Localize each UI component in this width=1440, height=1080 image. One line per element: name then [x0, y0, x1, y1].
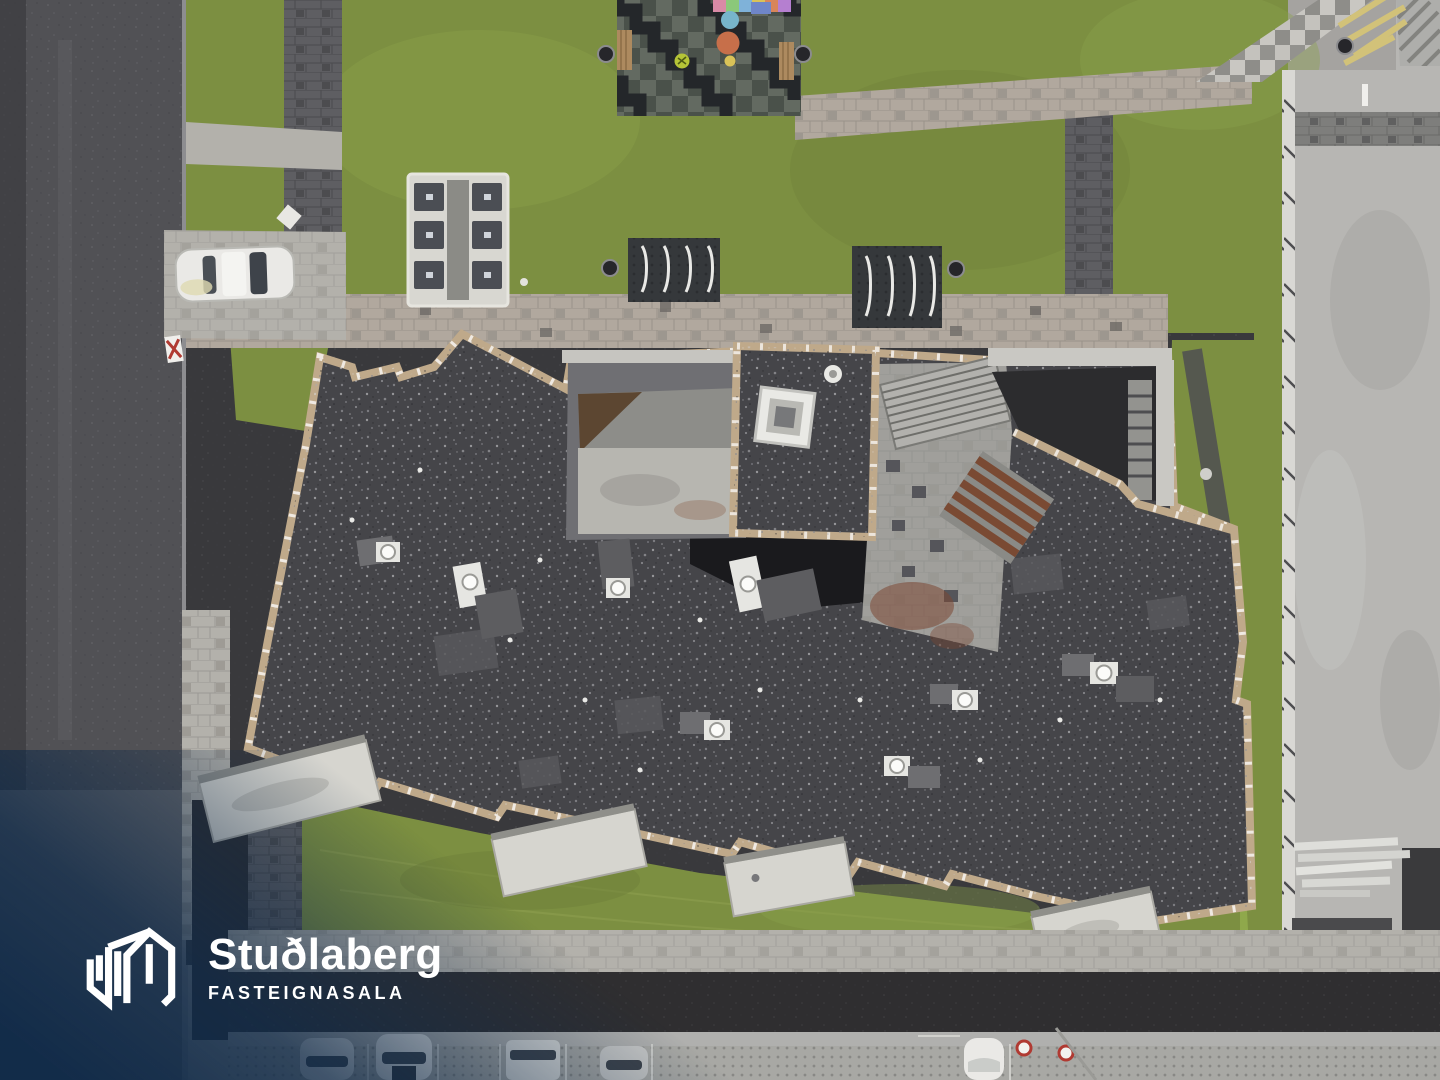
- skylight: [755, 387, 815, 447]
- enclosure-alley: [447, 180, 469, 300]
- windshield: [249, 252, 267, 295]
- bench-left: [617, 30, 632, 70]
- vent-center: [829, 370, 837, 378]
- street-wear-line: [58, 40, 72, 740]
- parked-car: [600, 1046, 648, 1080]
- deck-stain: [1294, 450, 1366, 670]
- concrete-stain: [600, 474, 680, 506]
- traffic-sign-round: [1017, 1041, 1031, 1055]
- deck-stain: [1330, 210, 1430, 390]
- brand-tagline: FASTEIGNASALA: [208, 983, 443, 1004]
- car-roof: [221, 252, 247, 297]
- play-mat-square: [751, 2, 771, 14]
- terrace-east-wall: [1156, 360, 1174, 506]
- aerial-photo: [0, 0, 1440, 1080]
- waste-bin-enclosure: [408, 174, 508, 306]
- logo-text: Stuðlaberg FASTEIGNASALA: [208, 932, 443, 1003]
- rust-stain: [870, 582, 954, 630]
- deck-stain: [1380, 630, 1440, 770]
- construction-deck: [1282, 0, 1440, 936]
- ground-light: [1337, 38, 1353, 54]
- parked-car: [300, 1038, 354, 1080]
- parked-car: [964, 1038, 1004, 1080]
- terrace-north-wall: [988, 348, 1172, 366]
- play-dome-orange: [717, 32, 740, 55]
- rust-stain: [674, 500, 726, 520]
- band-texture: [1292, 112, 1440, 146]
- street-dark-shoulder: [0, 0, 26, 790]
- rust-stain: [930, 623, 974, 649]
- play-dome-yellow: [725, 56, 736, 67]
- play-mat: [713, 0, 791, 14]
- courtyard-north-wall: [562, 350, 748, 363]
- aerial-photo-stage: Stuðlaberg FASTEIGNASALA: [0, 0, 1440, 1080]
- play-dome-blue: [721, 11, 739, 29]
- terrace-trellis: [1128, 380, 1152, 500]
- brand-name: Stuðlaberg: [208, 932, 443, 978]
- street: [0, 0, 188, 1080]
- lawn-marker: [520, 278, 528, 286]
- ground-light: [948, 261, 964, 277]
- scaffold-edge: [1282, 70, 1295, 936]
- ground-light: [602, 260, 618, 276]
- studlaberg-logo-mark: [78, 922, 190, 1014]
- lawn-fixture: [1200, 468, 1212, 480]
- parked-van: [506, 1040, 560, 1080]
- path-texture: [1065, 92, 1113, 304]
- center-roof-block: [733, 346, 876, 537]
- west-courtyard: [562, 350, 748, 540]
- studlaberg-logo: Stuðlaberg FASTEIGNASALA: [78, 922, 443, 1014]
- vent-unit: [598, 538, 635, 598]
- ground-light: [795, 46, 811, 62]
- white-car-street: [175, 246, 295, 302]
- bench-right: [779, 42, 794, 80]
- parked-car: [376, 1034, 432, 1080]
- deck-marking: [1362, 84, 1368, 106]
- ground-light: [598, 46, 614, 62]
